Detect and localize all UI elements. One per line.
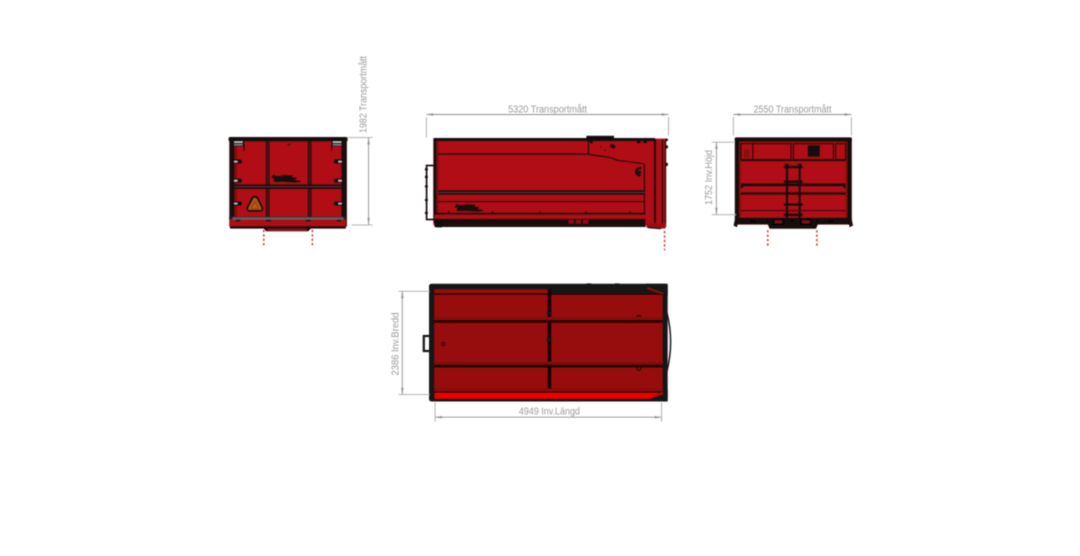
svg-text:2550 Transportmått: 2550 Transportmått bbox=[754, 105, 832, 116]
svg-text:4949 Inv.Längd: 4949 Inv.Längd bbox=[519, 406, 580, 417]
svg-text:1752 Inv.Höjd: 1752 Inv.Höjd bbox=[704, 150, 715, 205]
svg-text:1982 Transportmått: 1982 Transportmått bbox=[359, 56, 370, 133]
svg-text:5320 Transportmått: 5320 Transportmått bbox=[508, 105, 587, 116]
svg-text:2386 Inv.Bredd: 2386 Inv.Bredd bbox=[390, 313, 401, 376]
